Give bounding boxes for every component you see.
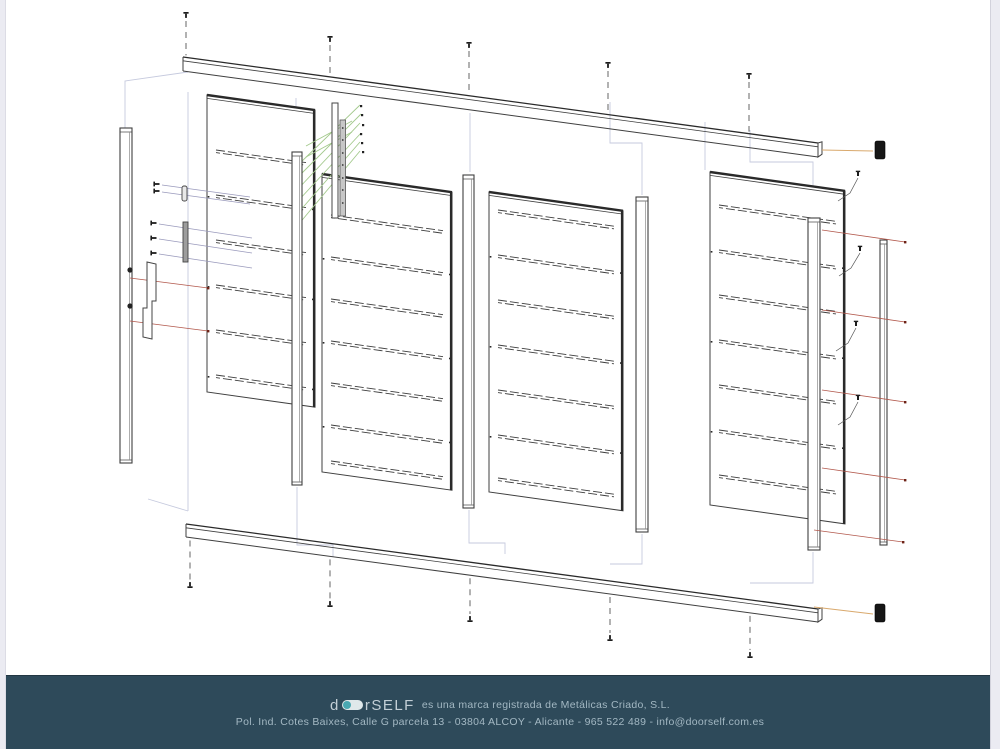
exploded-gate-diagram (0, 0, 1000, 676)
toggle-knob-icon (343, 701, 351, 709)
page-edge-right (990, 0, 1000, 749)
logo-text-d: d (330, 698, 340, 713)
page: d rSELF es una marca registrada de Metál… (0, 0, 1000, 749)
vertical-profile-2 (292, 152, 302, 485)
page-edge-left (0, 0, 6, 749)
trademark-text: es una marca registrada de Metálicas Cri… (422, 699, 670, 711)
vertical-profile-6 (880, 240, 887, 545)
lock-hardware (127, 186, 188, 339)
vertical-profile-5 (808, 218, 820, 550)
doorself-logo: d rSELF (330, 698, 415, 713)
footer: d rSELF es una marca registrada de Metál… (0, 675, 1000, 749)
vertical-profile-3 (463, 175, 474, 508)
address-text: Pol. Ind. Cotes Baixes, Calle G parcela … (236, 716, 764, 728)
brand-line: d rSELF es una marca registrada de Metál… (330, 698, 670, 713)
logo-text-rself: rSELF (365, 698, 415, 713)
bottom-rail (186, 524, 822, 622)
gate-panel-3 (489, 192, 623, 511)
gate-panel-4 (710, 172, 845, 524)
toggle-icon (342, 700, 363, 710)
gate-panel-2 (322, 174, 452, 490)
vertical-profile-1 (120, 128, 132, 463)
vertical-profile-4 (636, 197, 648, 532)
